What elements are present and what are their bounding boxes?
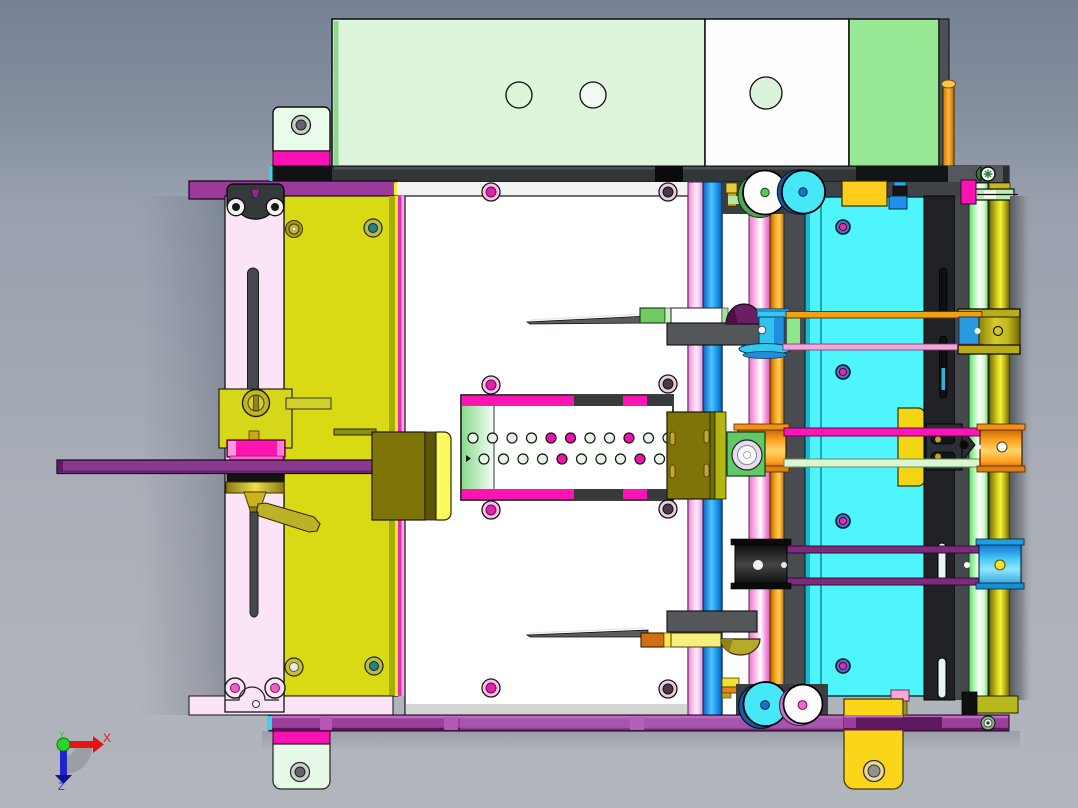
svg-text:Z: Z xyxy=(58,781,65,793)
svg-text:X: X xyxy=(103,731,111,745)
